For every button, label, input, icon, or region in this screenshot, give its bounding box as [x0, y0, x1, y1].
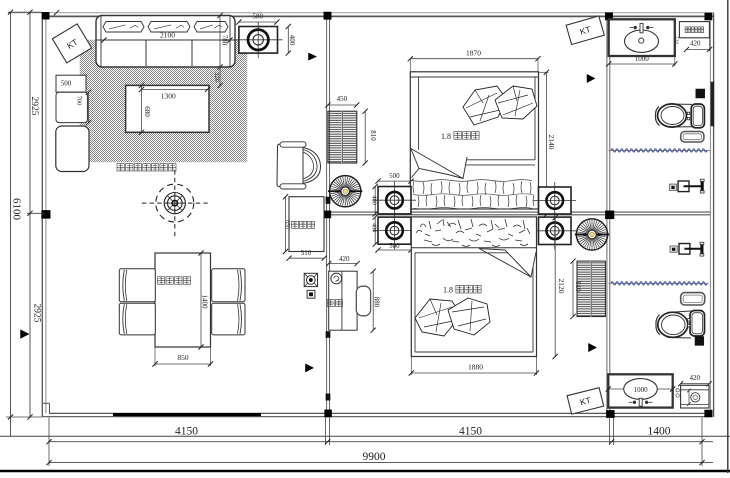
svg-text:780: 780: [220, 35, 228, 46]
svg-text:810: 810: [574, 281, 582, 292]
svg-text:420: 420: [690, 374, 701, 382]
svg-text:1000: 1000: [634, 386, 649, 394]
svg-text:1880: 1880: [468, 363, 483, 372]
svg-text:1400: 1400: [648, 426, 671, 438]
svg-text:420: 420: [690, 40, 701, 48]
svg-text:2140: 2140: [547, 135, 556, 150]
svg-text:1.8: 1.8: [441, 132, 451, 141]
svg-text:580: 580: [253, 13, 264, 21]
svg-text:500: 500: [389, 242, 400, 250]
svg-text:500: 500: [389, 172, 400, 180]
svg-text:4150: 4150: [459, 426, 482, 438]
svg-text:420: 420: [339, 255, 350, 263]
svg-text:400: 400: [371, 196, 378, 205]
svg-text:880: 880: [373, 297, 381, 308]
svg-text:500: 500: [61, 80, 72, 88]
svg-text:320: 320: [673, 36, 679, 45]
svg-text:1400: 1400: [200, 295, 208, 310]
svg-text:1000: 1000: [635, 55, 650, 63]
svg-text:810: 810: [369, 130, 377, 141]
svg-text:450: 450: [337, 95, 348, 103]
svg-text:850: 850: [177, 353, 189, 362]
svg-text:6100: 6100: [11, 198, 23, 221]
svg-text:680: 680: [143, 106, 151, 117]
svg-text:700: 700: [76, 96, 83, 106]
svg-text:2100: 2100: [160, 31, 175, 40]
svg-text:1.8: 1.8: [443, 286, 453, 295]
svg-text:510: 510: [301, 249, 312, 257]
svg-text:400: 400: [371, 223, 378, 232]
svg-text:9900: 9900: [363, 451, 386, 463]
svg-text:2925: 2925: [32, 304, 42, 323]
svg-text:400: 400: [288, 35, 296, 46]
svg-text:1300: 1300: [161, 92, 176, 101]
svg-text:2925: 2925: [29, 97, 39, 116]
svg-text:320: 320: [213, 72, 220, 82]
svg-text:4150: 4150: [175, 426, 198, 438]
svg-text:2120: 2120: [557, 279, 566, 294]
svg-text:850: 850: [284, 220, 290, 229]
svg-text:1870: 1870: [466, 49, 481, 58]
